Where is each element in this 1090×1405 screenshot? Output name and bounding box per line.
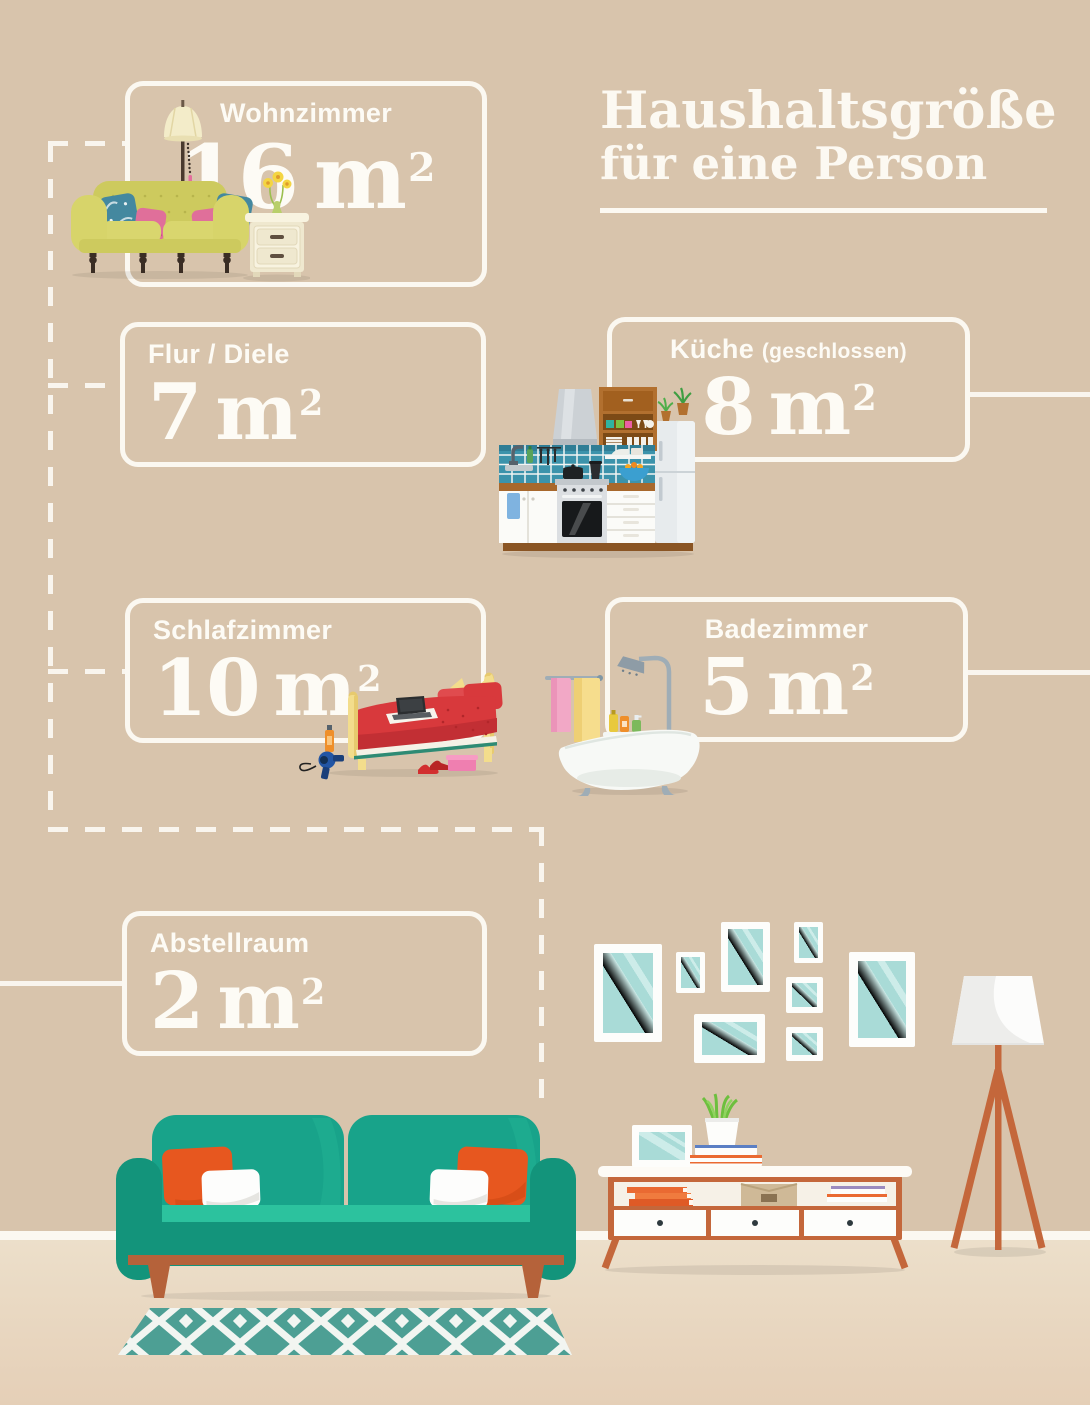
room-area: 2m2 <box>150 963 482 1041</box>
title-line-2: für eine Person <box>600 139 1057 189</box>
shelf-books-right <box>827 1186 887 1202</box>
teal-sofa-illustration <box>116 1110 576 1302</box>
upper-cabinet-icon <box>599 387 657 451</box>
kitchen-illustration <box>495 385 700 560</box>
bed-icon <box>348 673 503 771</box>
shelf-books-orange <box>627 1187 693 1206</box>
potted-plant-icon <box>703 1094 739 1145</box>
nightstand-icon <box>243 172 310 282</box>
storage-box-icon <box>741 1184 797 1206</box>
dashed-connector-schlafzimmer <box>48 669 127 674</box>
kitchen-plinth <box>503 543 693 551</box>
line-abstellraum-left <box>0 981 122 986</box>
plant-icon <box>658 388 691 421</box>
dashed-line-vertical-middle <box>539 827 544 1114</box>
bed-illustration <box>298 672 516 780</box>
towel-rail-icon <box>545 675 603 742</box>
sideboard-illustration <box>595 1088 915 1278</box>
counter-left <box>499 483 557 491</box>
lower-cabinet-left <box>499 491 557 543</box>
rug-icon <box>118 1308 572 1355</box>
pink-box-icon <box>446 755 478 771</box>
floor-lamp-illustration <box>938 970 1058 1270</box>
title-underline <box>600 208 1047 213</box>
sideboard-icon <box>598 1166 912 1268</box>
line-badezimmer-right <box>966 670 1090 675</box>
sofa-icon <box>71 181 254 273</box>
pillow-white-icon <box>429 1169 488 1209</box>
room-card-flur-diele: Flur / Diele 7m2 <box>120 322 486 467</box>
flowers-icon <box>263 172 292 189</box>
bathtub-illustration <box>545 628 707 798</box>
page-title: Haushaltsgröße für eine Person <box>600 84 1057 213</box>
spray-bottle-icon <box>325 725 334 752</box>
gallery-frames-illustration <box>588 916 923 1068</box>
rug-illustration <box>105 1298 580 1360</box>
room-qualifier: (geschlossen) <box>762 340 907 363</box>
dashed-line-horizontal <box>48 827 544 832</box>
living-room-sofa-illustration <box>55 95 310 285</box>
range-hood-icon <box>553 389 597 445</box>
dashed-connector-flur <box>48 383 122 388</box>
pillow-white-icon <box>201 1169 260 1209</box>
floor-lamp-icon <box>952 976 1044 1250</box>
counter-right <box>607 483 655 491</box>
sofa-teal-icon <box>116 1115 576 1298</box>
picture-frame-icon <box>594 922 915 1063</box>
dashed-line-vertical-left <box>48 143 53 830</box>
infographic-canvas: Wohnzimmer 16m2 Flur / Diele 7m2 Küche (… <box>0 0 1090 1405</box>
fridge-icon <box>655 421 695 543</box>
line-kueche-right <box>968 392 1090 397</box>
room-area: 7m2 <box>148 374 481 452</box>
tabletop-frame-icon <box>632 1125 692 1167</box>
lower-cabinet-right <box>607 491 655 543</box>
room-card-abstellraum: Abstellraum 2m2 <box>122 911 487 1056</box>
title-line-1: Haushaltsgröße <box>600 84 1057 139</box>
hair-dryer-icon <box>300 752 344 780</box>
tabletop-books-icon <box>690 1145 762 1166</box>
